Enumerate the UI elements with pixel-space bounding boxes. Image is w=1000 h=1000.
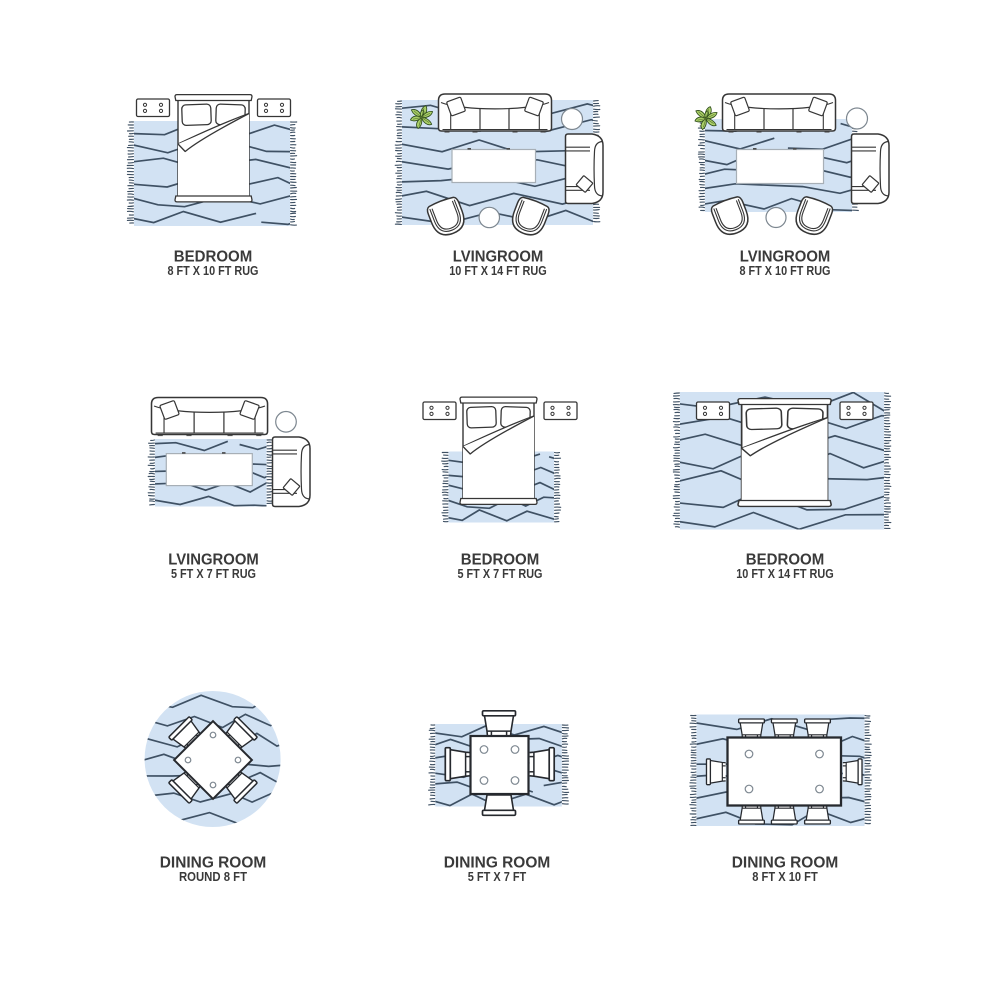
svg-text:5 FT X 7 FT RUG: 5 FT X 7 FT RUG: [171, 567, 256, 581]
svg-text:8 FT X 10 FT RUG: 8 FT X 10 FT RUG: [740, 264, 831, 278]
svg-text:ROUND 8 FT: ROUND 8 FT: [179, 870, 247, 884]
svg-text:5 FT X 7 FT RUG: 5 FT X 7 FT RUG: [458, 567, 543, 581]
svg-text:DINING ROOM: DINING ROOM: [444, 855, 551, 872]
svg-text:LVINGROOM: LVINGROOM: [740, 249, 831, 266]
svg-text:10 FT X 14 FT RUG: 10 FT X 14 FT RUG: [736, 567, 834, 581]
svg-text:LVINGROOM: LVINGROOM: [453, 249, 544, 266]
svg-text:8 FT X 10 FT RUG: 8 FT X 10 FT RUG: [168, 264, 259, 278]
svg-text:BEDROOM: BEDROOM: [461, 552, 540, 569]
svg-text:BEDROOM: BEDROOM: [746, 552, 825, 569]
svg-text:LVINGROOM: LVINGROOM: [168, 552, 259, 569]
svg-text:10 FT X 14 FT RUG: 10 FT X 14 FT RUG: [449, 264, 547, 278]
svg-text:BEDROOM: BEDROOM: [174, 249, 253, 266]
svg-text:5 FT X 7 FT: 5 FT X 7 FT: [468, 870, 527, 884]
svg-text:DINING ROOM: DINING ROOM: [732, 855, 839, 872]
svg-text:8 FT X 10 FT: 8 FT X 10 FT: [752, 870, 818, 884]
svg-text:DINING ROOM: DINING ROOM: [160, 855, 267, 872]
